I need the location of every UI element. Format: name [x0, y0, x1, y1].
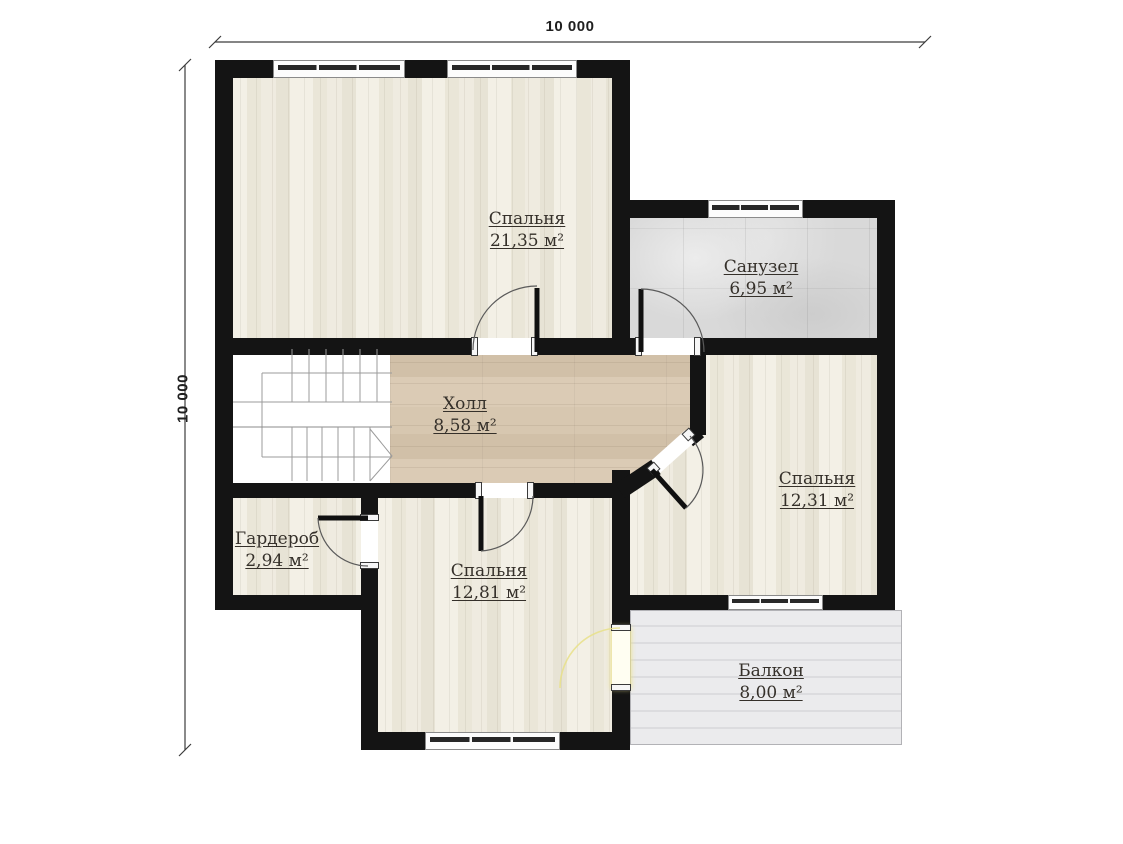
room-label-balcony: Балкон 8,00 м²	[671, 660, 871, 704]
room-area: 2,94 м²	[177, 550, 377, 572]
room-area: 12,81 м²	[389, 582, 589, 604]
room-label-wardrobe: Гардероб 2,94 м²	[177, 528, 377, 572]
room-name: Спальня	[717, 468, 917, 490]
room-name: Спальня	[389, 560, 589, 582]
room-area: 21,35 м²	[427, 230, 627, 252]
floor-plan: Спальня 21,35 м² Санузел 6,95 м² Холл 8,…	[0, 0, 1123, 844]
room-area: 8,00 м²	[671, 682, 871, 704]
room-label-bedroom-1: Спальня 21,35 м²	[427, 208, 627, 252]
balcony-door-swing-arc	[560, 628, 620, 688]
dimension-left-label: 10 000	[175, 329, 192, 469]
room-area: 12,31 м²	[717, 490, 917, 512]
room-name: Спальня	[427, 208, 627, 230]
room-label-bedroom-2: Спальня 12,31 м²	[717, 468, 917, 512]
room-name: Гардероб	[177, 528, 377, 550]
room-name: Балкон	[671, 660, 871, 682]
room-area: 8,58 м²	[365, 415, 565, 437]
room-label-hall: Холл 8,58 м²	[365, 393, 565, 437]
room-name: Санузел	[661, 256, 861, 278]
room-area: 6,95 м²	[661, 278, 861, 300]
room-name: Холл	[365, 393, 565, 415]
room-label-bedroom-3: Спальня 12,81 м²	[389, 560, 589, 604]
dimension-top-label: 10 000	[215, 18, 925, 35]
room-label-bathroom: Санузел 6,95 м²	[661, 256, 861, 300]
